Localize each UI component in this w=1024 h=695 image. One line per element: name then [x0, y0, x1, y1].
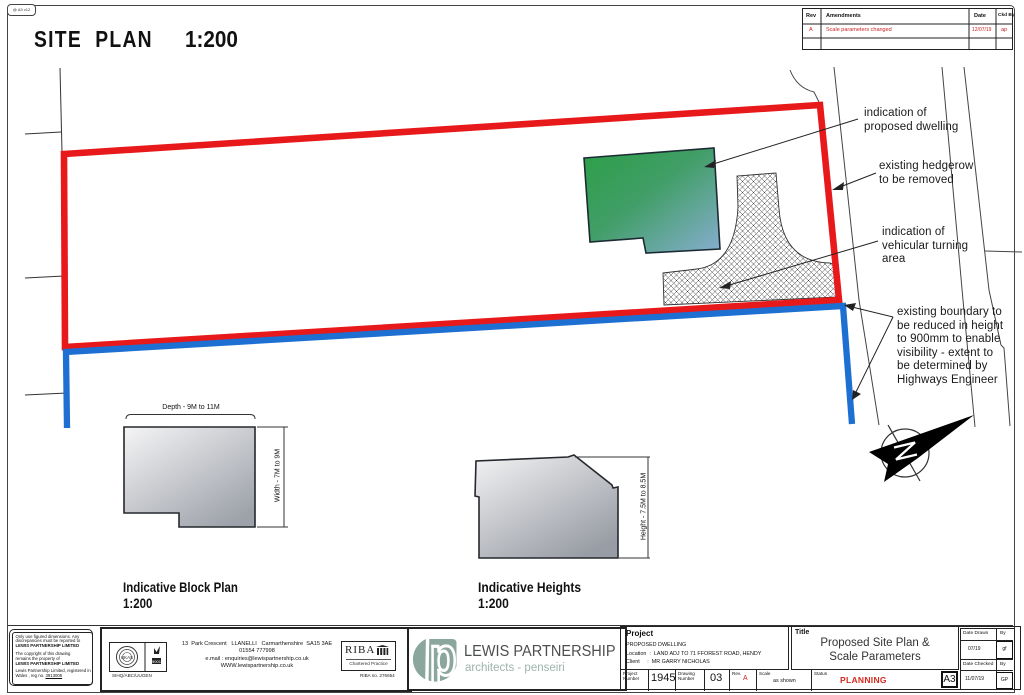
svg-text:UKAS: UKAS	[121, 655, 133, 660]
svg-text:p: p	[430, 636, 457, 686]
